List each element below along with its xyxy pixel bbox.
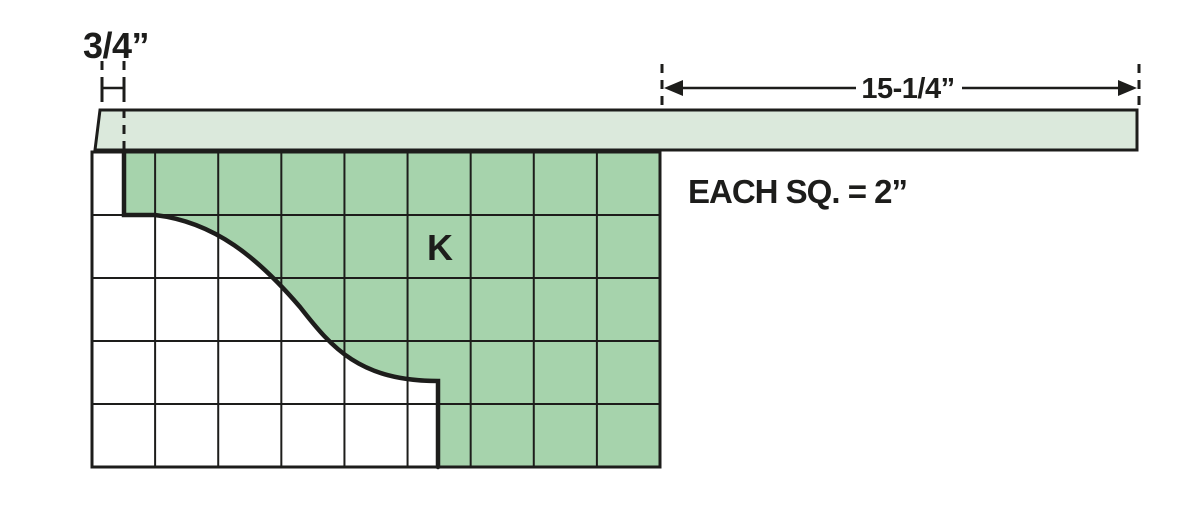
pattern-diagram: 3/4” 15-1/4” EACH SQ. = 2” K	[0, 0, 1200, 511]
dim-length-label: 15-1/4”	[861, 73, 954, 105]
diagram-canvas: 3/4” 15-1/4” EACH SQ. = 2” K	[0, 0, 1200, 511]
dim-offset-label: 3/4”	[83, 25, 149, 66]
piece-k-label: K	[427, 227, 453, 268]
top-rail-strip	[95, 110, 1137, 150]
scale-note-label: EACH SQ. = 2”	[688, 173, 907, 210]
